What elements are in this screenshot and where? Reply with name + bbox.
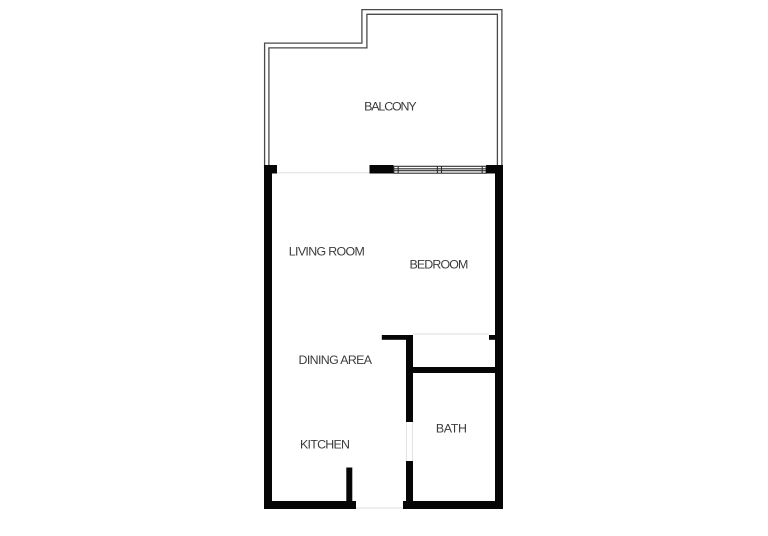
svg-text:BATH: BATH bbox=[436, 422, 467, 436]
svg-text:BALCONY: BALCONY bbox=[364, 100, 417, 114]
svg-text:LIVING ROOM: LIVING ROOM bbox=[289, 245, 365, 259]
svg-text:DINING AREA: DINING AREA bbox=[299, 353, 373, 367]
svg-text:KITCHEN: KITCHEN bbox=[300, 438, 350, 452]
svg-text:BEDROOM: BEDROOM bbox=[410, 257, 469, 271]
